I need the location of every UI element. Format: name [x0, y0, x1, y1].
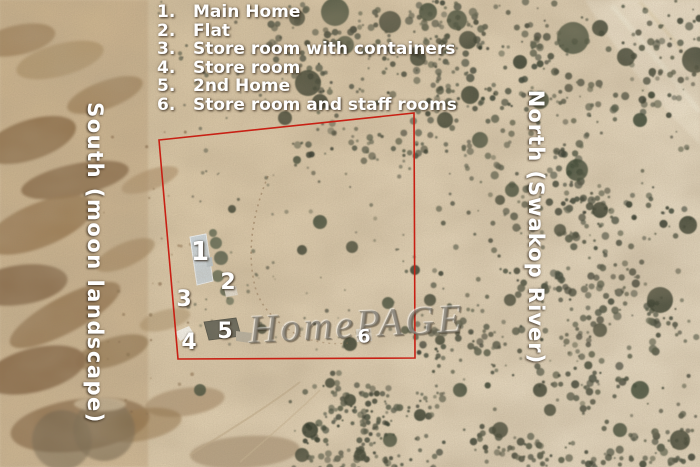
- map-marker-6: 6: [357, 328, 370, 347]
- legend: 1. Main Home 2. Flat 3. Store room with …: [157, 3, 457, 115]
- legend-item: 5. 2nd Home: [157, 77, 457, 96]
- aerial-property-map: HomePAGE 1. Main Home 2. Flat 3. Store r…: [0, 0, 700, 467]
- legend-item-label: Store room and staff rooms: [193, 96, 457, 115]
- legend-item: 1. Main Home: [157, 3, 457, 22]
- side-label-north: North (Swakop River): [524, 90, 548, 364]
- legend-item-label: Main Home: [193, 3, 300, 22]
- legend-item-label: 2nd Home: [193, 77, 290, 96]
- legend-item: 2. Flat: [157, 22, 457, 41]
- legend-item: 3. Store room with containers: [157, 40, 457, 59]
- map-marker-1: 1: [191, 239, 209, 265]
- map-marker-4: 4: [181, 332, 196, 354]
- legend-item-number: 2.: [157, 22, 193, 41]
- legend-item-label: Flat: [193, 22, 230, 41]
- legend-item-number: 3.: [157, 40, 193, 59]
- legend-item-number: 1.: [157, 3, 193, 22]
- legend-item-number: 4.: [157, 59, 193, 78]
- map-marker-5: 5: [217, 321, 232, 343]
- legend-item: 6. Store room and staff rooms: [157, 96, 457, 115]
- side-label-south: South (moon landscape): [83, 102, 107, 424]
- legend-item-label: Store room with containers: [193, 40, 455, 59]
- map-marker-2: 2: [220, 272, 235, 294]
- legend-item: 4. Store room: [157, 59, 457, 78]
- legend-item-label: Store room: [193, 59, 300, 78]
- map-marker-3: 3: [176, 289, 191, 311]
- legend-item-number: 6.: [157, 96, 193, 115]
- legend-item-number: 5.: [157, 77, 193, 96]
